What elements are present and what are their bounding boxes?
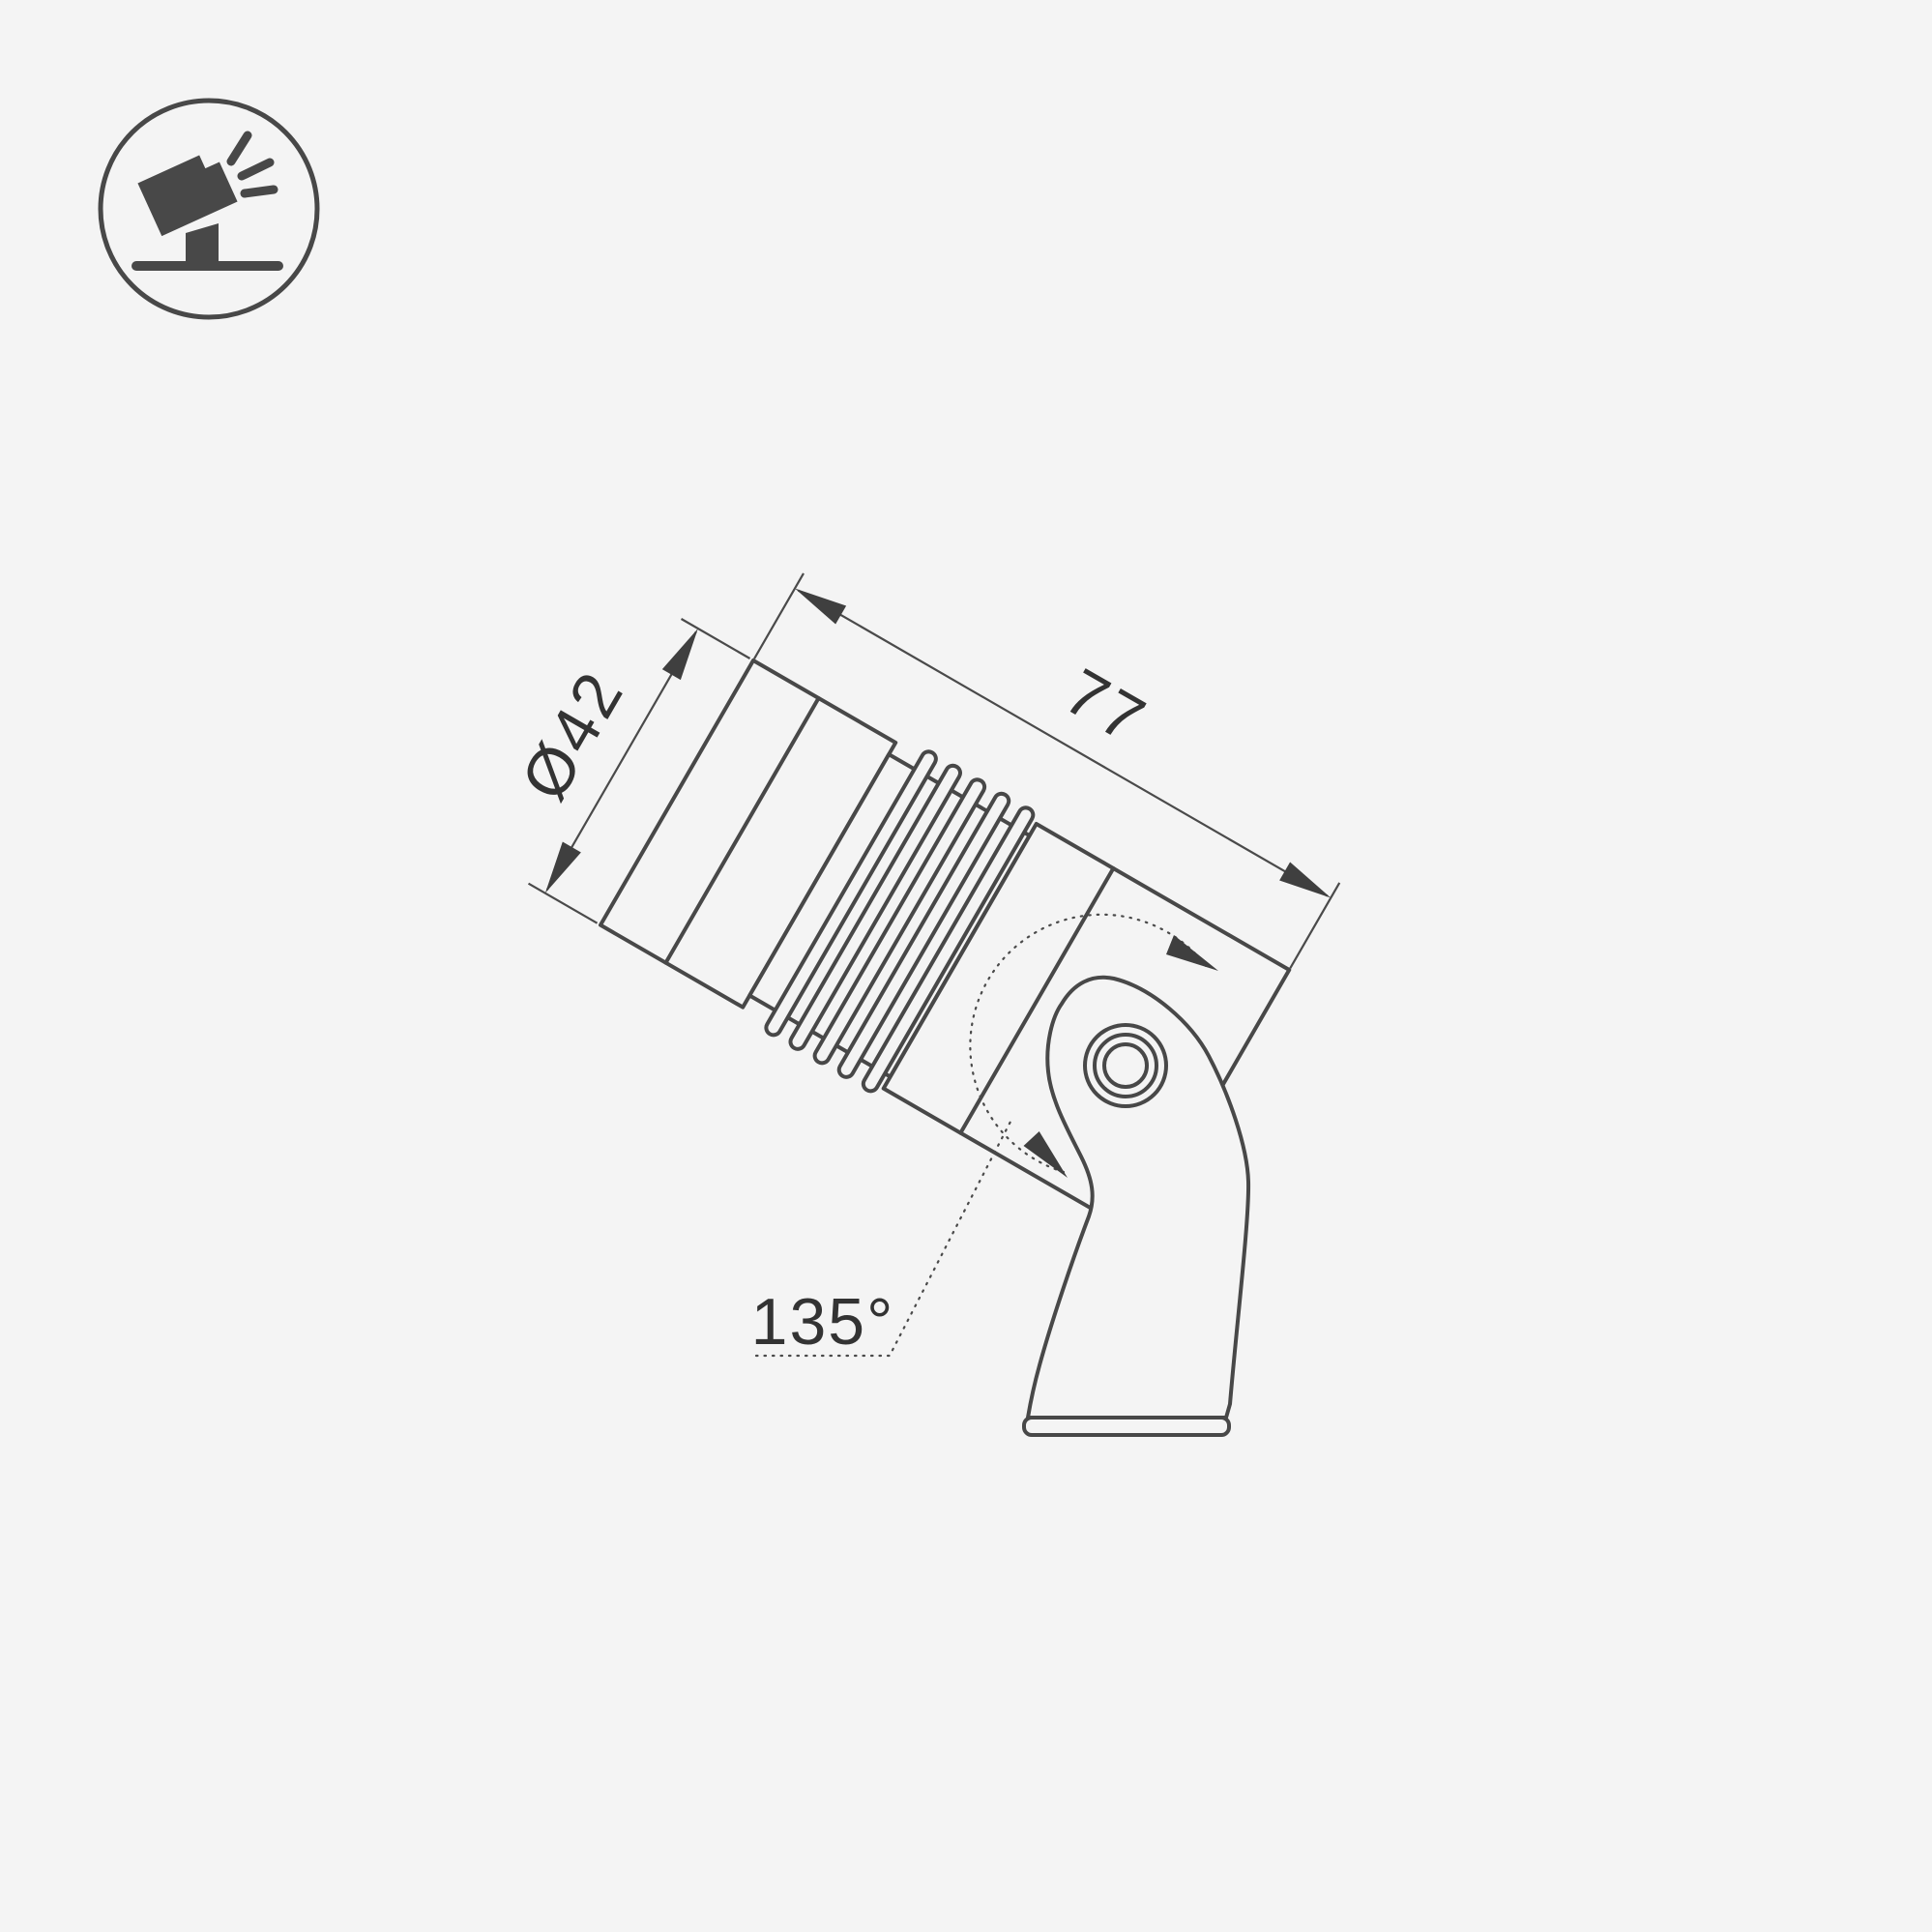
tilted-spotlight-icon — [101, 101, 317, 317]
arrowhead-down-icon — [536, 842, 581, 899]
pivot-circle-inner — [1104, 1044, 1147, 1087]
technical-drawing-page: 77 Ø42 135° — [0, 0, 1932, 1932]
bracket-base-plate — [1024, 1418, 1229, 1435]
diameter-dimension-label: Ø42 — [507, 658, 638, 812]
extension-line-rear — [1290, 883, 1339, 968]
pivot-joint — [1085, 1025, 1166, 1106]
extension-line-front — [754, 573, 804, 659]
arrowhead-right-icon — [1279, 862, 1336, 907]
length-dimension-label: 77 — [1053, 655, 1159, 759]
arrowhead-left-icon — [790, 579, 847, 625]
lamp-body-group: 77 Ø42 — [461, 432, 1376, 1243]
rotation-angle-label: 135° — [751, 1285, 895, 1359]
extension-line-bottom — [529, 884, 598, 923]
spotlight-head-icon — [135, 142, 241, 236]
spotlight-dimension-drawing: 77 Ø42 135° — [0, 0, 1932, 1932]
light-rays-icon — [231, 135, 274, 193]
arrowhead-up-icon — [662, 624, 708, 681]
spotlight-stem-icon — [186, 223, 219, 266]
